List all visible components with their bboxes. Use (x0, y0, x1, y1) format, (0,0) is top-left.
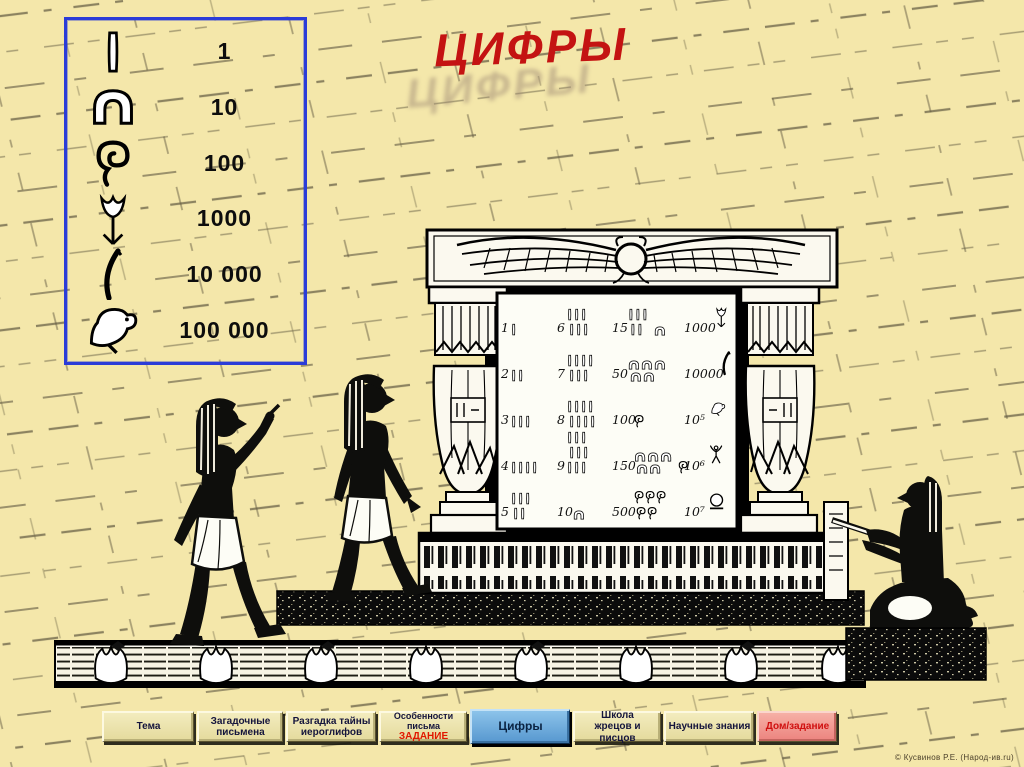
seated-scribe (824, 476, 986, 680)
svg-text:3: 3 (501, 412, 509, 427)
nav-button-zagadochnye-pismena[interactable]: Загадочные письмена (197, 711, 283, 742)
nav-button-label: Научные знания (669, 721, 751, 732)
svg-text:1: 1 (501, 320, 509, 335)
scribe-plinth (846, 628, 986, 680)
svg-text:10⁵: 10⁵ (684, 412, 705, 427)
nav-button-nauchnye-znaniya[interactable]: Научные знания (664, 711, 754, 742)
monument-base (277, 591, 864, 625)
svg-text:10⁶: 10⁶ (684, 458, 705, 473)
svg-text:10000: 10000 (684, 366, 724, 381)
svg-text:150: 150 (612, 458, 636, 473)
nav-button-sublabel-zadanie: ЗАДАНИЕ (399, 731, 448, 742)
svg-text:7: 7 (557, 366, 565, 381)
base-frieze (419, 533, 839, 593)
monument-illustration: 161510002750100003810010⁵4915010⁶5105001… (0, 0, 1024, 767)
nav-button-label: Особенности письма (383, 711, 464, 731)
svg-text:500: 500 (612, 504, 636, 519)
slide-navigation: Тема Загадочные письмена Разгадка тайны … (102, 711, 837, 744)
right-papyrus-column (741, 287, 819, 533)
credit-text: © Кусвинов Р.Е. (Народ-ив.ru) (895, 753, 1014, 762)
lotus-frieze (55, 641, 865, 687)
nav-button-tsifry-active[interactable]: Цифры (470, 709, 570, 744)
slide: ЦИФРЫ ЦИФРЫ 1 10 100 1000 10 000 100 000 (0, 0, 1024, 767)
nav-button-label: Цифры (498, 720, 542, 733)
monument: 161510002750100003810010⁵4915010⁶5105001… (419, 230, 839, 593)
scribe-board (824, 502, 848, 600)
svg-text:2: 2 (500, 366, 509, 381)
svg-text:9: 9 (557, 458, 565, 473)
nav-button-tema[interactable]: Тема (102, 711, 194, 742)
svg-text:8: 8 (557, 412, 565, 427)
svg-text:1000: 1000 (684, 320, 716, 335)
nav-button-osobennosti-pisma[interactable]: Особенности письма ЗАДАНИЕ (379, 711, 467, 742)
nav-button-label: Загадочные письмена (211, 716, 271, 738)
nav-button-shkola-zhretsov[interactable]: Школа жрецов и писцов (573, 711, 661, 742)
svg-text:5: 5 (501, 504, 509, 519)
nav-button-label: Тема (137, 721, 161, 732)
standing-egyptian (324, 374, 432, 602)
svg-text:100: 100 (612, 412, 636, 427)
svg-text:15: 15 (612, 320, 628, 335)
svg-text:50: 50 (612, 366, 628, 381)
nav-button-dom-zadanie[interactable]: Дом/задание (757, 711, 837, 742)
nav-button-label: Школа жрецов и писцов (577, 710, 658, 744)
svg-text:4: 4 (500, 458, 509, 473)
svg-text:10⁷: 10⁷ (684, 504, 705, 519)
nav-button-razgadka-tayny[interactable]: Разгадка тайны иероглифов (286, 711, 376, 742)
svg-text:10: 10 (557, 504, 573, 519)
nav-button-label: Дом/задание (766, 721, 829, 732)
standing-egyptian-pointing (170, 398, 286, 646)
nav-button-label: Разгадка тайны иероглифов (293, 716, 371, 738)
svg-text:6: 6 (557, 320, 565, 335)
